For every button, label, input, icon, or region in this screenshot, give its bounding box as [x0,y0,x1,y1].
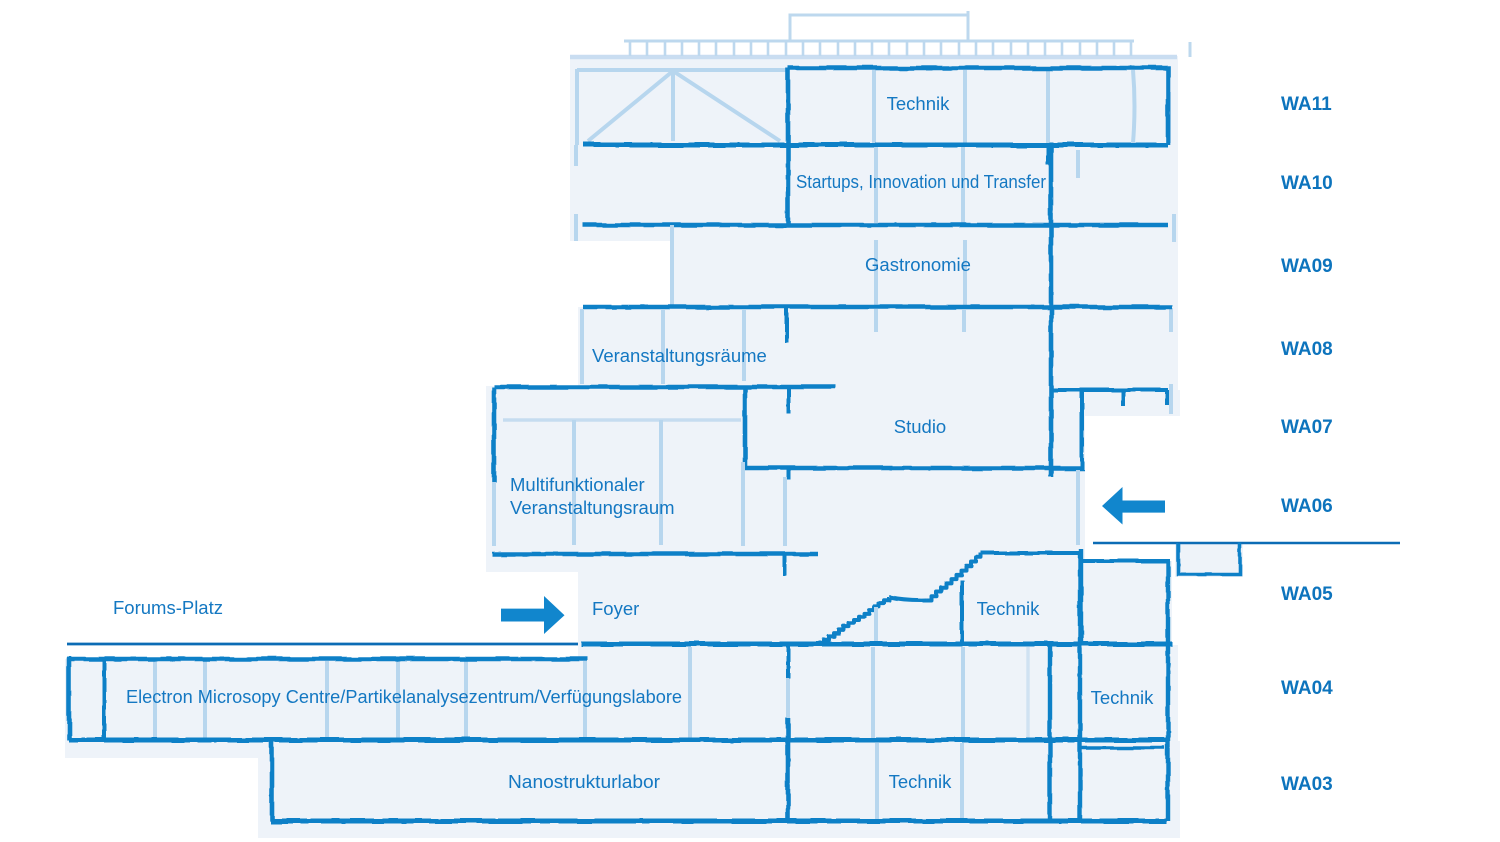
svg-text:Technik: Technik [1091,687,1154,708]
svg-text:WA07: WA07 [1281,417,1333,438]
svg-text:WA06: WA06 [1281,496,1333,517]
svg-text:Nanostrukturlabor: Nanostrukturlabor [508,771,660,792]
svg-text:Veranstaltungsraum: Veranstaltungsraum [510,497,675,518]
svg-text:WA10: WA10 [1281,173,1333,194]
svg-text:WA11: WA11 [1281,94,1332,115]
svg-text:Veranstaltungsräume: Veranstaltungsräume [592,345,767,366]
svg-text:WA09: WA09 [1281,256,1333,277]
svg-text:Startups, Innovation und Trans: Startups, Innovation und Transfer [796,171,1046,192]
svg-text:Technik: Technik [889,771,952,792]
svg-text:WA08: WA08 [1281,339,1333,360]
svg-text:Technik: Technik [887,93,950,114]
svg-text:Forums-Platz: Forums-Platz [113,597,223,618]
svg-text:WA04: WA04 [1281,678,1333,699]
svg-text:Technik: Technik [977,598,1040,619]
svg-text:WA05: WA05 [1281,584,1333,605]
svg-text:Studio: Studio [894,416,946,437]
svg-text:Electron Microsopy Centre/Part: Electron Microsopy Centre/Partikelanalys… [126,686,682,707]
svg-text:Foyer: Foyer [592,598,639,619]
svg-text:WA03: WA03 [1281,774,1333,795]
svg-text:Gastronomie: Gastronomie [865,254,971,275]
svg-text:Multifunktionaler: Multifunktionaler [510,474,645,495]
